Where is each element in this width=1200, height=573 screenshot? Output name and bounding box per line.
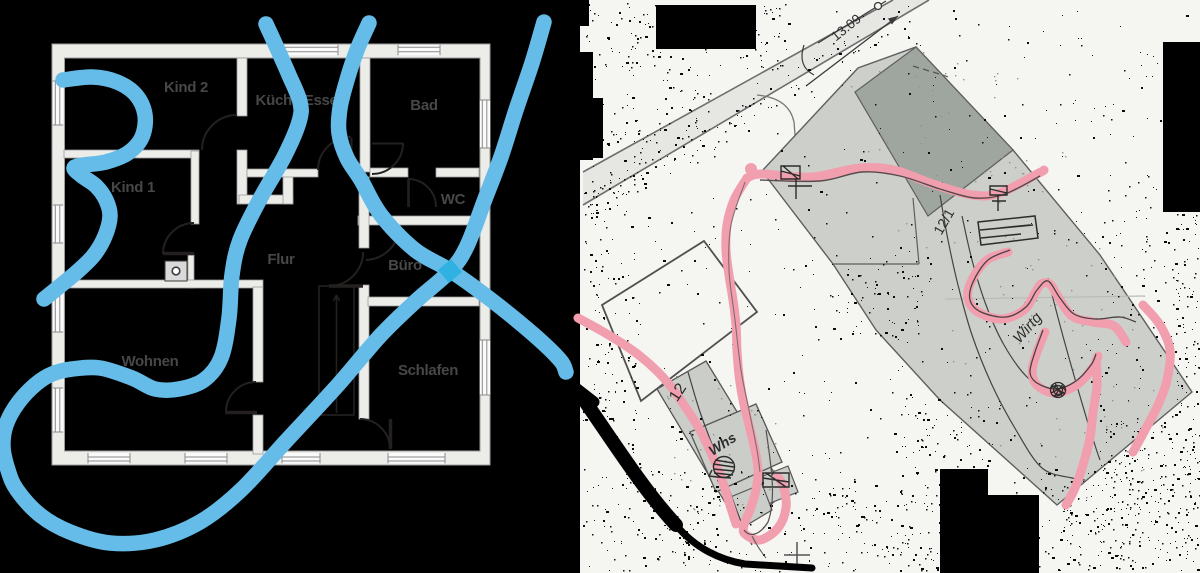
svg-text:Kind 1: Kind 1 — [111, 179, 155, 196]
svg-text:WC: WC — [441, 191, 466, 208]
svg-text:Wohnen: Wohnen — [121, 353, 178, 370]
svg-text:Bad: Bad — [410, 97, 438, 114]
svg-text:Schlafen: Schlafen — [398, 362, 458, 379]
svg-text:Flur: Flur — [267, 251, 295, 268]
svg-text:Kind 2: Kind 2 — [164, 79, 208, 96]
